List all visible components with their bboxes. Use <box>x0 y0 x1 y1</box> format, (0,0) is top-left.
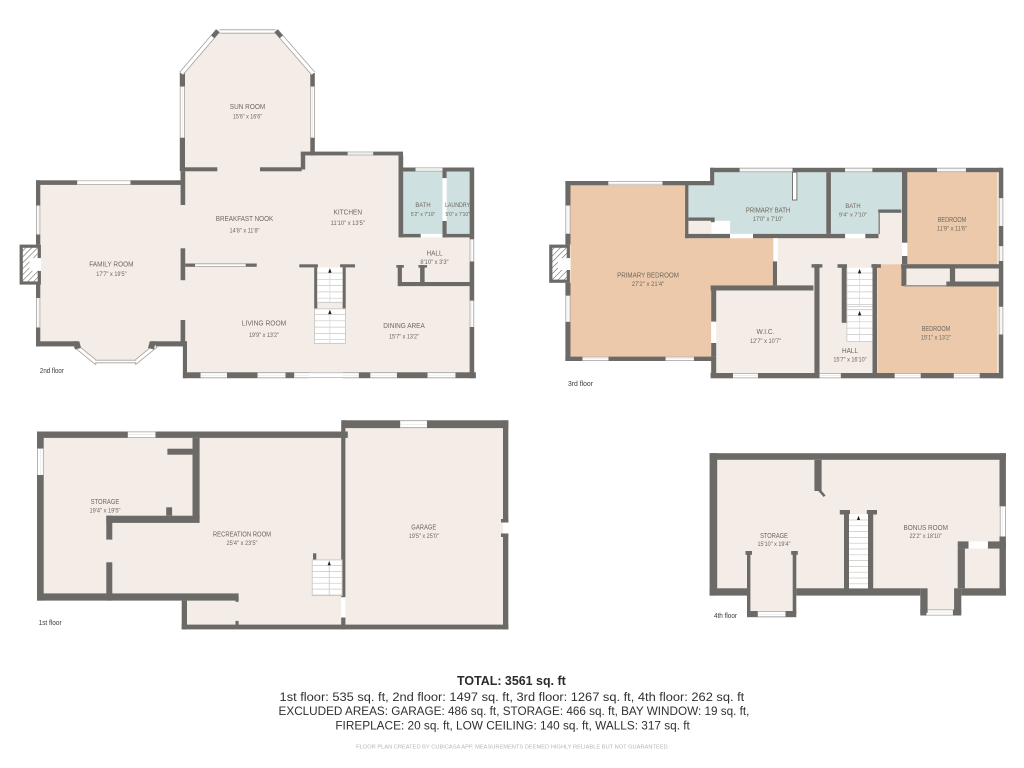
svg-text:EXCLUDED AREAS: GARAGE: 486 sq: EXCLUDED AREAS: GARAGE: 486 sq. ft, STOR… <box>279 704 750 718</box>
svg-text:15'1" x 13'2": 15'1" x 13'2" <box>921 336 951 342</box>
svg-text:TOTAL: 3561 sq. ft: TOTAL: 3561 sq. ft <box>457 674 566 688</box>
svg-text:BREAKFAST NOOK: BREAKFAST NOOK <box>216 216 274 223</box>
svg-text:STORAGE: STORAGE <box>91 499 120 506</box>
svg-text:11'9" x 11'6": 11'9" x 11'6" <box>937 226 967 232</box>
svg-text:19'5" x 25'0": 19'5" x 25'0" <box>409 534 439 540</box>
svg-text:1st floor: 535 sq. ft, 2nd flo: 1st floor: 535 sq. ft, 2nd floor: 1497 s… <box>280 690 745 704</box>
svg-text:STORAGE: STORAGE <box>760 533 788 540</box>
svg-text:15'10" x 19'4": 15'10" x 19'4" <box>758 542 791 548</box>
svg-text:BEDROOM: BEDROOM <box>922 326 951 333</box>
svg-text:HALL: HALL <box>427 251 443 258</box>
svg-text:PRIMARY BEDROOM: PRIMARY BEDROOM <box>617 272 679 279</box>
svg-text:DINING AREA: DINING AREA <box>383 323 425 330</box>
svg-text:17'7" x 19'5": 17'7" x 19'5" <box>96 272 126 278</box>
svg-text:LAUNDRY: LAUNDRY <box>445 202 470 209</box>
svg-text:22'2" x 18'10": 22'2" x 18'10" <box>909 534 942 540</box>
svg-text:11'10" x 13'5": 11'10" x 13'5" <box>331 221 365 227</box>
svg-text:HALL: HALL <box>842 348 858 355</box>
svg-text:9'4" x 7'10": 9'4" x 7'10" <box>839 212 867 218</box>
svg-text:17'0" x 7'10": 17'0" x 7'10" <box>753 217 784 223</box>
svg-text:12'7" x 10'7": 12'7" x 10'7" <box>750 339 781 345</box>
svg-text:FLOOR PLAN CREATED BY CUBICASA: FLOOR PLAN CREATED BY CUBICASA APP. MEAS… <box>356 744 669 750</box>
svg-text:KITCHEN: KITCHEN <box>334 209 363 216</box>
svg-text:PRIMARY BATH: PRIMARY BATH <box>746 208 791 215</box>
svg-text:LIVING ROOM: LIVING ROOM <box>242 320 287 327</box>
svg-text:BATH: BATH <box>845 203 861 210</box>
svg-text:1st floor: 1st floor <box>39 619 63 627</box>
svg-text:27'2" x 21'4": 27'2" x 21'4" <box>632 282 665 288</box>
svg-text:BATH: BATH <box>415 202 430 209</box>
svg-text:25'4" x 23'5": 25'4" x 23'5" <box>227 541 258 547</box>
svg-text:5'0" x 7'10": 5'0" x 7'10" <box>445 212 470 218</box>
svg-text:8'10" x 3'3": 8'10" x 3'3" <box>420 260 448 266</box>
svg-text:3rd floor: 3rd floor <box>568 380 594 388</box>
svg-text:BONUS ROOM: BONUS ROOM <box>903 525 948 532</box>
svg-text:GARAGE: GARAGE <box>411 525 436 532</box>
svg-text:FAMILY ROOM: FAMILY ROOM <box>89 262 134 269</box>
svg-text:19'9" x 13'2": 19'9" x 13'2" <box>249 333 279 339</box>
svg-text:5'2" x 7'10": 5'2" x 7'10" <box>411 212 436 218</box>
svg-text:15'7" x 13'2": 15'7" x 13'2" <box>389 335 419 341</box>
svg-text:BEDROOM: BEDROOM <box>938 217 967 224</box>
svg-text:14'8" x 11'8": 14'8" x 11'8" <box>230 228 260 234</box>
svg-text:4th floor: 4th floor <box>714 612 738 620</box>
svg-text:2nd floor: 2nd floor <box>40 367 65 375</box>
svg-text:19'4" x 19'5": 19'4" x 19'5" <box>89 509 120 515</box>
svg-text:FIREPLACE: 20 sq. ft, LOW CEIL: FIREPLACE: 20 sq. ft, LOW CEILING: 140 s… <box>335 718 690 732</box>
svg-text:SUN ROOM: SUN ROOM <box>230 104 266 111</box>
svg-text:RECREATION ROOM: RECREATION ROOM <box>213 531 271 538</box>
svg-text:W.I.C.: W.I.C. <box>757 329 775 336</box>
svg-text:15'6" x 16'6": 15'6" x 16'6" <box>233 115 262 121</box>
svg-text:15'7" x 16'10": 15'7" x 16'10" <box>833 358 866 364</box>
